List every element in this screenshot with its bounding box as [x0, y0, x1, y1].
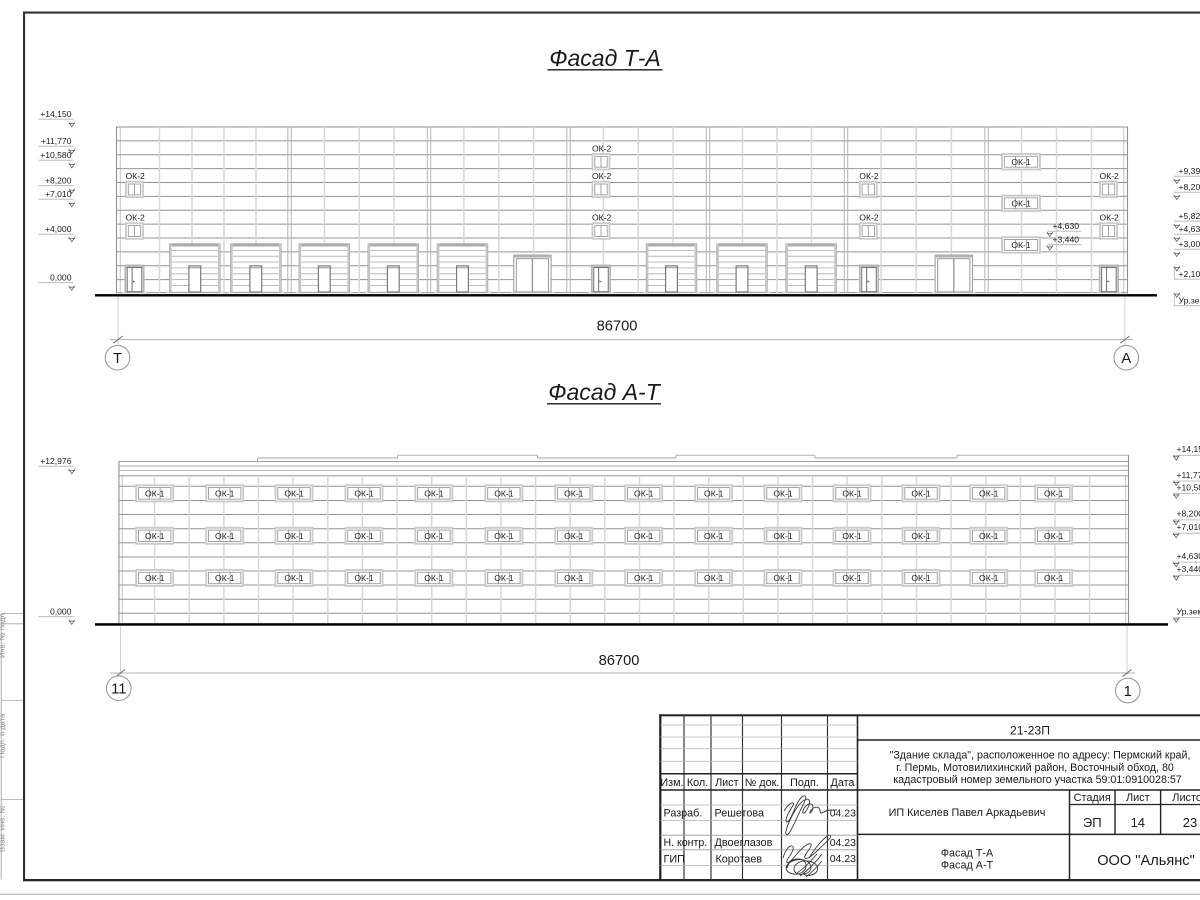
svg-text:04.23: 04.23 — [830, 837, 856, 849]
svg-text:ООО "Альянс": ООО "Альянс" — [1097, 853, 1195, 869]
svg-text:ОК-1: ОК-1 — [1044, 573, 1064, 583]
svg-text:Фасад А-Т: Фасад А-Т — [941, 859, 994, 871]
svg-text:+14,150: +14,150 — [1177, 444, 1200, 454]
svg-text:Подп. и дата: Подп. и дата — [0, 713, 7, 758]
svg-text:Кол.: Кол. — [687, 777, 708, 789]
svg-text:86700: 86700 — [597, 318, 638, 334]
svg-text:Дата: Дата — [831, 777, 855, 789]
svg-text:ОК-1: ОК-1 — [284, 531, 304, 541]
svg-text:Ур.земли: Ур.земли — [1179, 296, 1200, 306]
svg-text:ИП Киселев Павел Аркадьевич: ИП Киселев Павел Аркадьевич — [889, 807, 1046, 819]
svg-text:А: А — [1121, 351, 1131, 367]
svg-text:Подп.: Подп. — [790, 777, 819, 789]
svg-text:Стадия: Стадия — [1074, 792, 1111, 804]
svg-text:+2,100: +2,100 — [1179, 269, 1200, 279]
svg-text:ОК-1: ОК-1 — [424, 573, 444, 583]
svg-text:ОК-2: ОК-2 — [859, 171, 879, 181]
svg-text:ОК-1: ОК-1 — [704, 573, 724, 583]
svg-text:ОК-1: ОК-1 — [842, 531, 862, 541]
svg-text:ОК-1: ОК-1 — [284, 573, 304, 583]
svg-text:+11,770: +11,770 — [41, 136, 72, 146]
svg-text:ОК-1: ОК-1 — [354, 573, 374, 583]
svg-text:ОК-1: ОК-1 — [979, 488, 999, 498]
svg-text:0,000: 0,000 — [50, 607, 72, 617]
svg-text:ОК-1: ОК-1 — [1044, 531, 1064, 541]
svg-text:ОК-2: ОК-2 — [126, 171, 146, 181]
svg-text:0,000: 0,000 — [50, 273, 72, 283]
svg-text:ОК-1: ОК-1 — [494, 488, 514, 498]
svg-text:ОК-1: ОК-1 — [424, 531, 444, 541]
svg-text:ОК-1: ОК-1 — [911, 531, 931, 541]
svg-text:ОК-1: ОК-1 — [634, 488, 654, 498]
svg-text:Фасад Т-А: Фасад Т-А — [549, 45, 661, 71]
svg-text:+5,820: +5,820 — [1179, 211, 1200, 221]
svg-text:"Здание склада", расположенное: "Здание склада", расположенное по адресу… — [890, 750, 1191, 762]
svg-text:+3,440: +3,440 — [1177, 564, 1200, 574]
svg-text:ГИП: ГИП — [664, 853, 685, 865]
svg-text:ОК-1: ОК-1 — [284, 488, 304, 498]
svg-text:ОК-2: ОК-2 — [126, 213, 146, 223]
svg-text:ОК-1: ОК-1 — [145, 488, 165, 498]
svg-text:04.23: 04.23 — [830, 808, 856, 820]
svg-text:+4,630: +4,630 — [1177, 551, 1200, 561]
svg-text:г. Пермь, Мотовилихинский райо: г. Пермь, Мотовилихинский район, Восточн… — [896, 762, 1174, 774]
svg-text:ОК-1: ОК-1 — [773, 573, 793, 583]
svg-text:+12,976: +12,976 — [40, 456, 72, 466]
svg-text:1: 1 — [1124, 684, 1132, 700]
svg-text:+4,630: +4,630 — [1179, 224, 1200, 234]
svg-text:+14,150: +14,150 — [40, 109, 72, 119]
svg-text:ОК-1: ОК-1 — [1011, 198, 1031, 208]
svg-text:ОК-1: ОК-1 — [704, 488, 724, 498]
svg-text:Разраб.: Разраб. — [664, 808, 703, 820]
svg-text:ОК-2: ОК-2 — [592, 171, 612, 181]
svg-text:ОК-1: ОК-1 — [911, 573, 931, 583]
svg-text:Взам. инв. №: Взам. инв. № — [0, 806, 7, 852]
svg-text:11: 11 — [111, 682, 126, 698]
svg-text:Двоеглазов: Двоеглазов — [715, 837, 773, 849]
svg-text:ОК-1: ОК-1 — [494, 531, 514, 541]
svg-text:ОК-1: ОК-1 — [354, 488, 374, 498]
svg-text:кадастровый номер земельного у: кадастровый номер земельного участка 59:… — [893, 774, 1182, 786]
svg-text:ОК-1: ОК-1 — [564, 531, 584, 541]
svg-text:Листов: Листов — [1172, 792, 1200, 804]
svg-text:86700: 86700 — [599, 653, 640, 669]
svg-text:+10,580: +10,580 — [1177, 482, 1200, 492]
svg-text:+3,440: +3,440 — [1053, 235, 1080, 245]
svg-text:Коротаев: Коротаев — [716, 853, 763, 865]
svg-text:ОК-1: ОК-1 — [911, 488, 931, 498]
svg-text:ОК-1: ОК-1 — [773, 488, 793, 498]
svg-text:+8,200: +8,200 — [45, 176, 72, 186]
svg-text:ОК-1: ОК-1 — [145, 573, 165, 583]
svg-text:ОК-1: ОК-1 — [704, 531, 724, 541]
svg-text:№ док.: № док. — [745, 777, 780, 789]
svg-text:ОК-1: ОК-1 — [979, 531, 999, 541]
svg-text:ОК-1: ОК-1 — [424, 488, 444, 498]
svg-text:+3,000: +3,000 — [1179, 239, 1200, 249]
svg-text:ОК-1: ОК-1 — [215, 531, 235, 541]
svg-text:Фасад А-Т: Фасад А-Т — [548, 379, 661, 405]
svg-text:+4,000: +4,000 — [45, 224, 72, 234]
svg-text:ОК-2: ОК-2 — [1100, 213, 1120, 223]
svg-text:Ур.земли: Ур.земли — [1177, 606, 1200, 616]
svg-text:Н. контр.: Н. контр. — [664, 837, 708, 849]
svg-text:ОК-2: ОК-2 — [1100, 171, 1120, 181]
svg-text:ОК-1: ОК-1 — [1011, 240, 1031, 250]
svg-text:Лист: Лист — [1126, 792, 1150, 804]
svg-text:ОК-1: ОК-1 — [215, 488, 235, 498]
svg-text:ОК-2: ОК-2 — [592, 213, 612, 223]
svg-text:14: 14 — [1131, 815, 1145, 830]
svg-text:+11,770: +11,770 — [1177, 470, 1200, 480]
svg-text:+9,390: +9,390 — [1179, 166, 1200, 176]
svg-text:+7,010: +7,010 — [1177, 522, 1200, 532]
svg-text:ОК-1: ОК-1 — [634, 573, 654, 583]
svg-text:Решетова: Решетова — [715, 808, 765, 820]
svg-text:ОК-1: ОК-1 — [215, 573, 235, 583]
svg-text:ОК-1: ОК-1 — [842, 488, 862, 498]
svg-text:ОК-1: ОК-1 — [842, 573, 862, 583]
svg-text:Т: Т — [113, 351, 122, 367]
svg-text:Инв. № подл.: Инв. № подл. — [0, 611, 7, 658]
svg-text:ОК-2: ОК-2 — [859, 213, 879, 223]
svg-text:23: 23 — [1183, 815, 1197, 830]
svg-text:21-23П: 21-23П — [1010, 723, 1050, 737]
svg-text:ОК-1: ОК-1 — [564, 573, 584, 583]
svg-text:ОК-1: ОК-1 — [354, 531, 374, 541]
svg-text:+10,580: +10,580 — [40, 150, 72, 160]
svg-text:ОК-1: ОК-1 — [145, 531, 165, 541]
svg-text:+4,630: +4,630 — [1053, 221, 1080, 231]
svg-text:ОК-1: ОК-1 — [1044, 488, 1064, 498]
svg-text:ОК-1: ОК-1 — [979, 573, 999, 583]
svg-text:ОК-1: ОК-1 — [773, 531, 793, 541]
svg-text:ОК-1: ОК-1 — [494, 573, 514, 583]
svg-text:ОК-1: ОК-1 — [634, 531, 654, 541]
svg-text:ОК-1: ОК-1 — [1011, 157, 1031, 167]
svg-text:+8,200: +8,200 — [1179, 182, 1200, 192]
svg-text:Изм.: Изм. — [660, 777, 683, 789]
svg-text:ОК-2: ОК-2 — [592, 143, 612, 153]
svg-text:Фасад Т-А: Фасад Т-А — [941, 848, 994, 860]
svg-text:04.23: 04.23 — [830, 853, 856, 865]
svg-text:ОК-1: ОК-1 — [564, 488, 584, 498]
svg-text:+8,200: +8,200 — [1177, 509, 1200, 519]
svg-text:+7,010: +7,010 — [45, 189, 72, 199]
svg-text:Лист: Лист — [715, 777, 739, 789]
svg-text:ЭП: ЭП — [1083, 815, 1102, 830]
